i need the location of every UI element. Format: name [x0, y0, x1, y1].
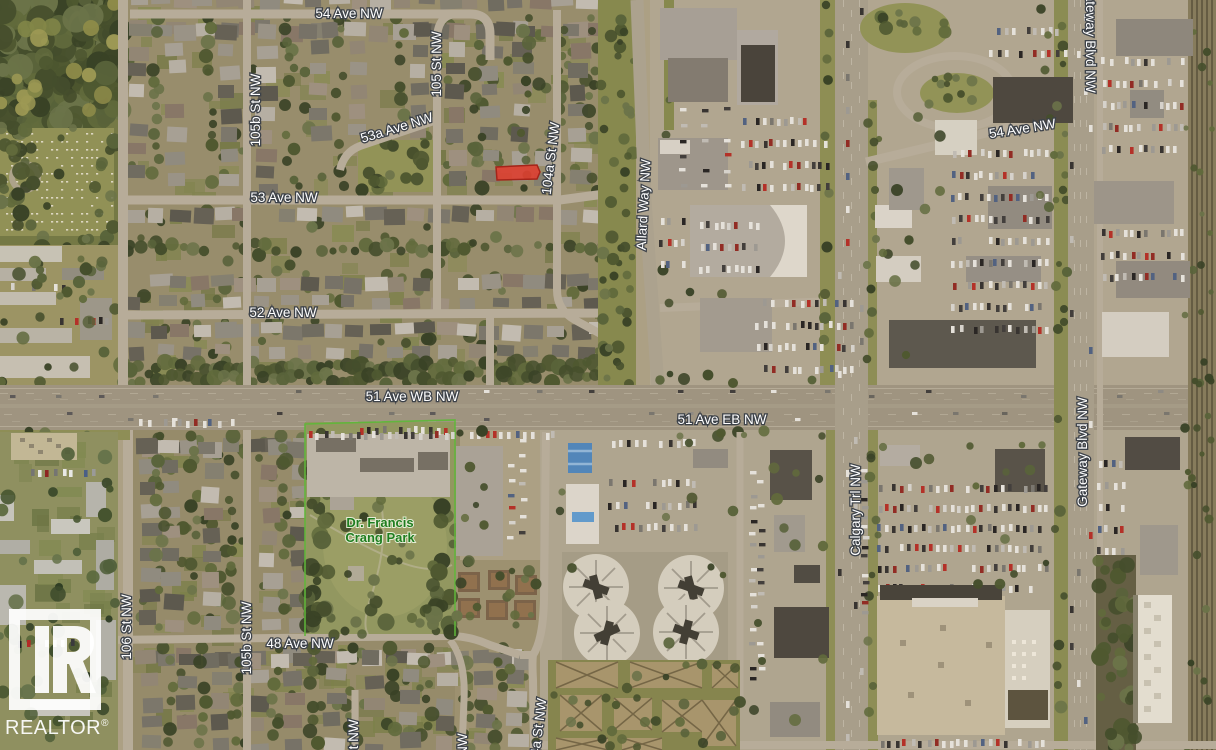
svg-text:52 Ave NW: 52 Ave NW	[249, 305, 317, 320]
svg-text:51 Ave WB NW: 51 Ave WB NW	[366, 389, 459, 404]
svg-text:Calgary Trl NW: Calgary Trl NW	[848, 464, 863, 556]
svg-text:105 St NW: 105 St NW	[429, 31, 444, 97]
svg-text:Gateway Blvd NW: Gateway Blvd NW	[1075, 397, 1090, 507]
svg-text:104 St NW: 104 St NW	[455, 733, 470, 750]
svg-text:53 Ave NW: 53 Ave NW	[250, 190, 318, 205]
svg-text:51 Ave EB NW: 51 Ave EB NW	[677, 412, 766, 427]
svg-text:Gateway Blvd NW: Gateway Blvd NW	[1083, 0, 1098, 93]
svg-text:105b St NW: 105b St NW	[239, 601, 254, 674]
svg-text:Dr. Francis: Dr. Francis	[346, 515, 413, 530]
svg-text:REALTOR®: REALTOR®	[5, 717, 109, 739]
svg-text:105 St NW: 105 St NW	[346, 719, 361, 750]
svg-text:48 Ave NW: 48 Ave NW	[266, 636, 334, 651]
svg-text:54 Ave NW: 54 Ave NW	[315, 6, 383, 21]
svg-text:105b St NW: 105b St NW	[248, 73, 263, 146]
svg-text:106 St NW: 106 St NW	[119, 594, 134, 660]
svg-text:Crang Park: Crang Park	[345, 530, 415, 545]
